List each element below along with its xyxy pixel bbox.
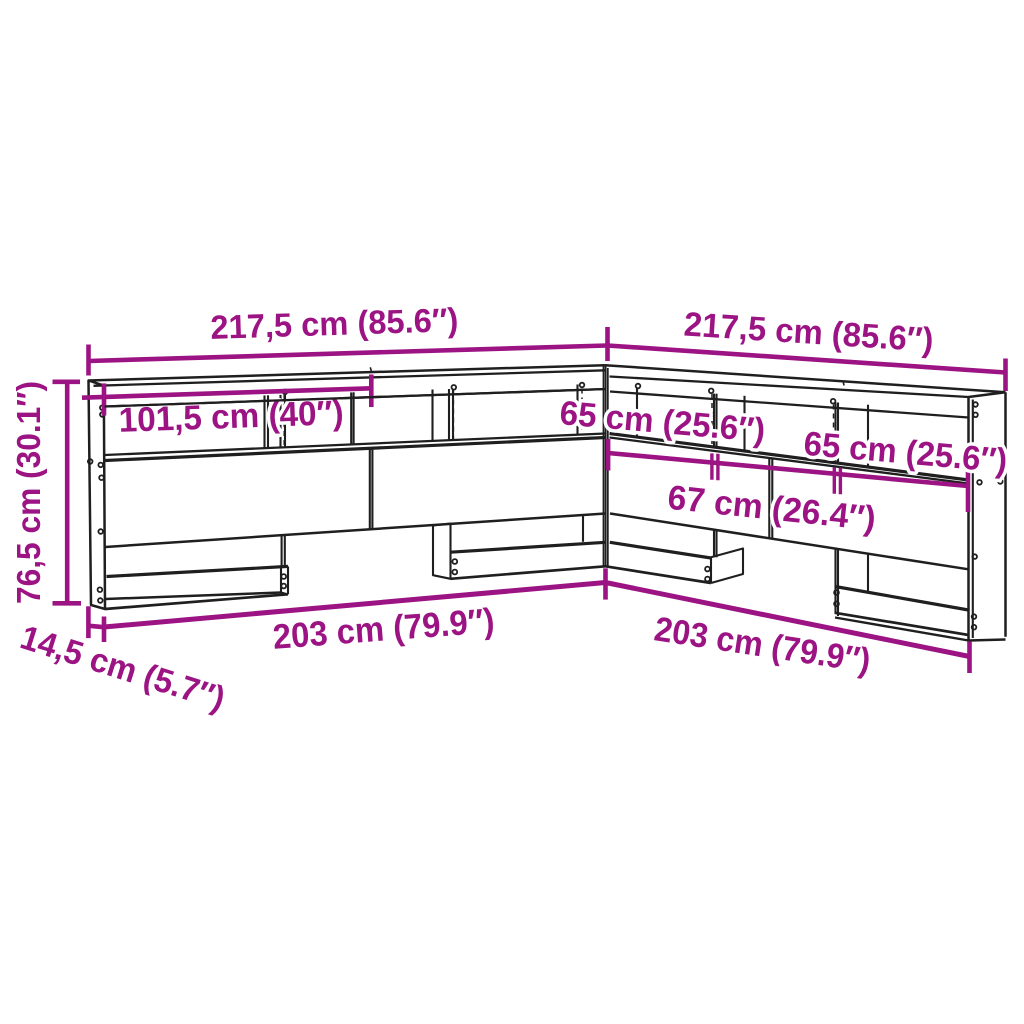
svg-text:76,5 cm (30.1″): 76,5 cm (30.1″)	[11, 381, 48, 604]
svg-text:217,5 cm (85.6″): 217,5 cm (85.6″)	[210, 302, 459, 347]
